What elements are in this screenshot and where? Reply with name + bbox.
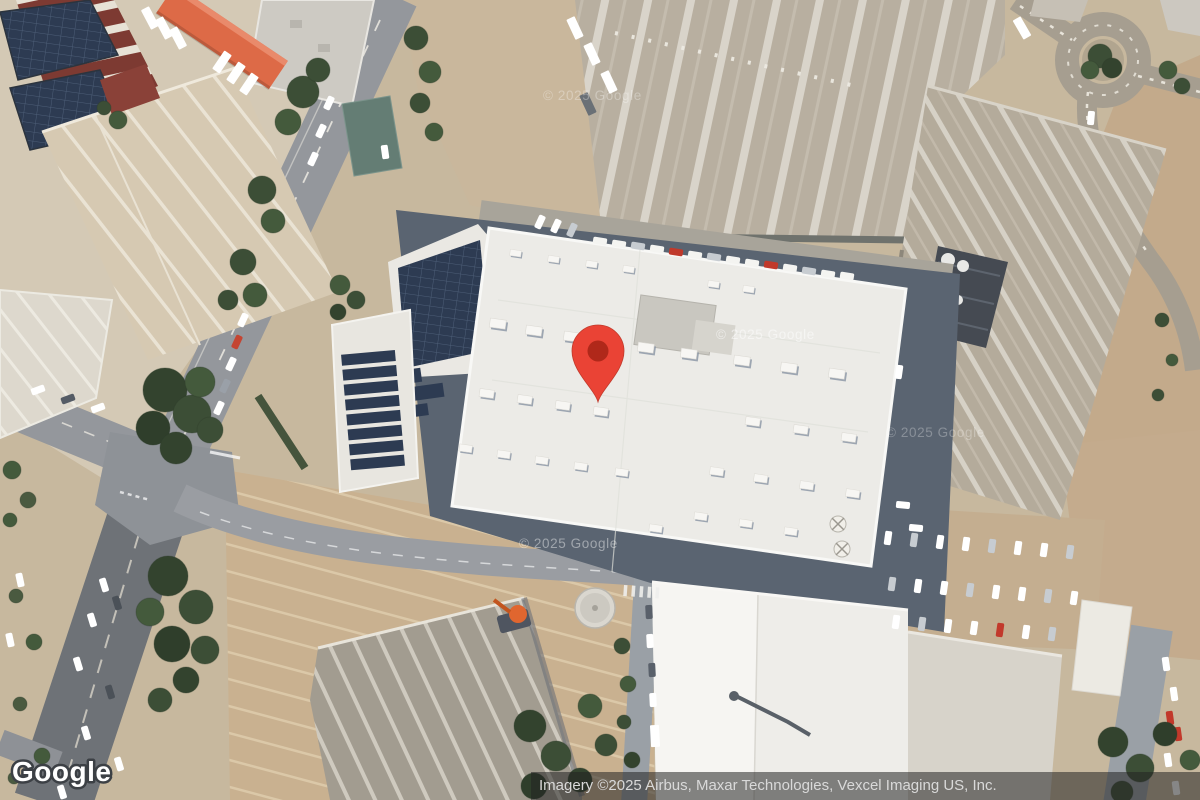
google-logo-text: Google [12,756,111,787]
attribution-text: Imagery ©2025 Airbus, Maxar Technologies… [539,777,997,794]
google-logo[interactable]: Google [8,750,148,794]
attribution-bar: Imagery ©2025 Airbus, Maxar Technologies… [531,772,1200,800]
satellite-map-viewport[interactable]: © 2025 Google © 2025 Google © 2025 Googl… [0,0,1200,800]
solar-annex [332,310,418,492]
satellite-imagery [0,0,1200,800]
